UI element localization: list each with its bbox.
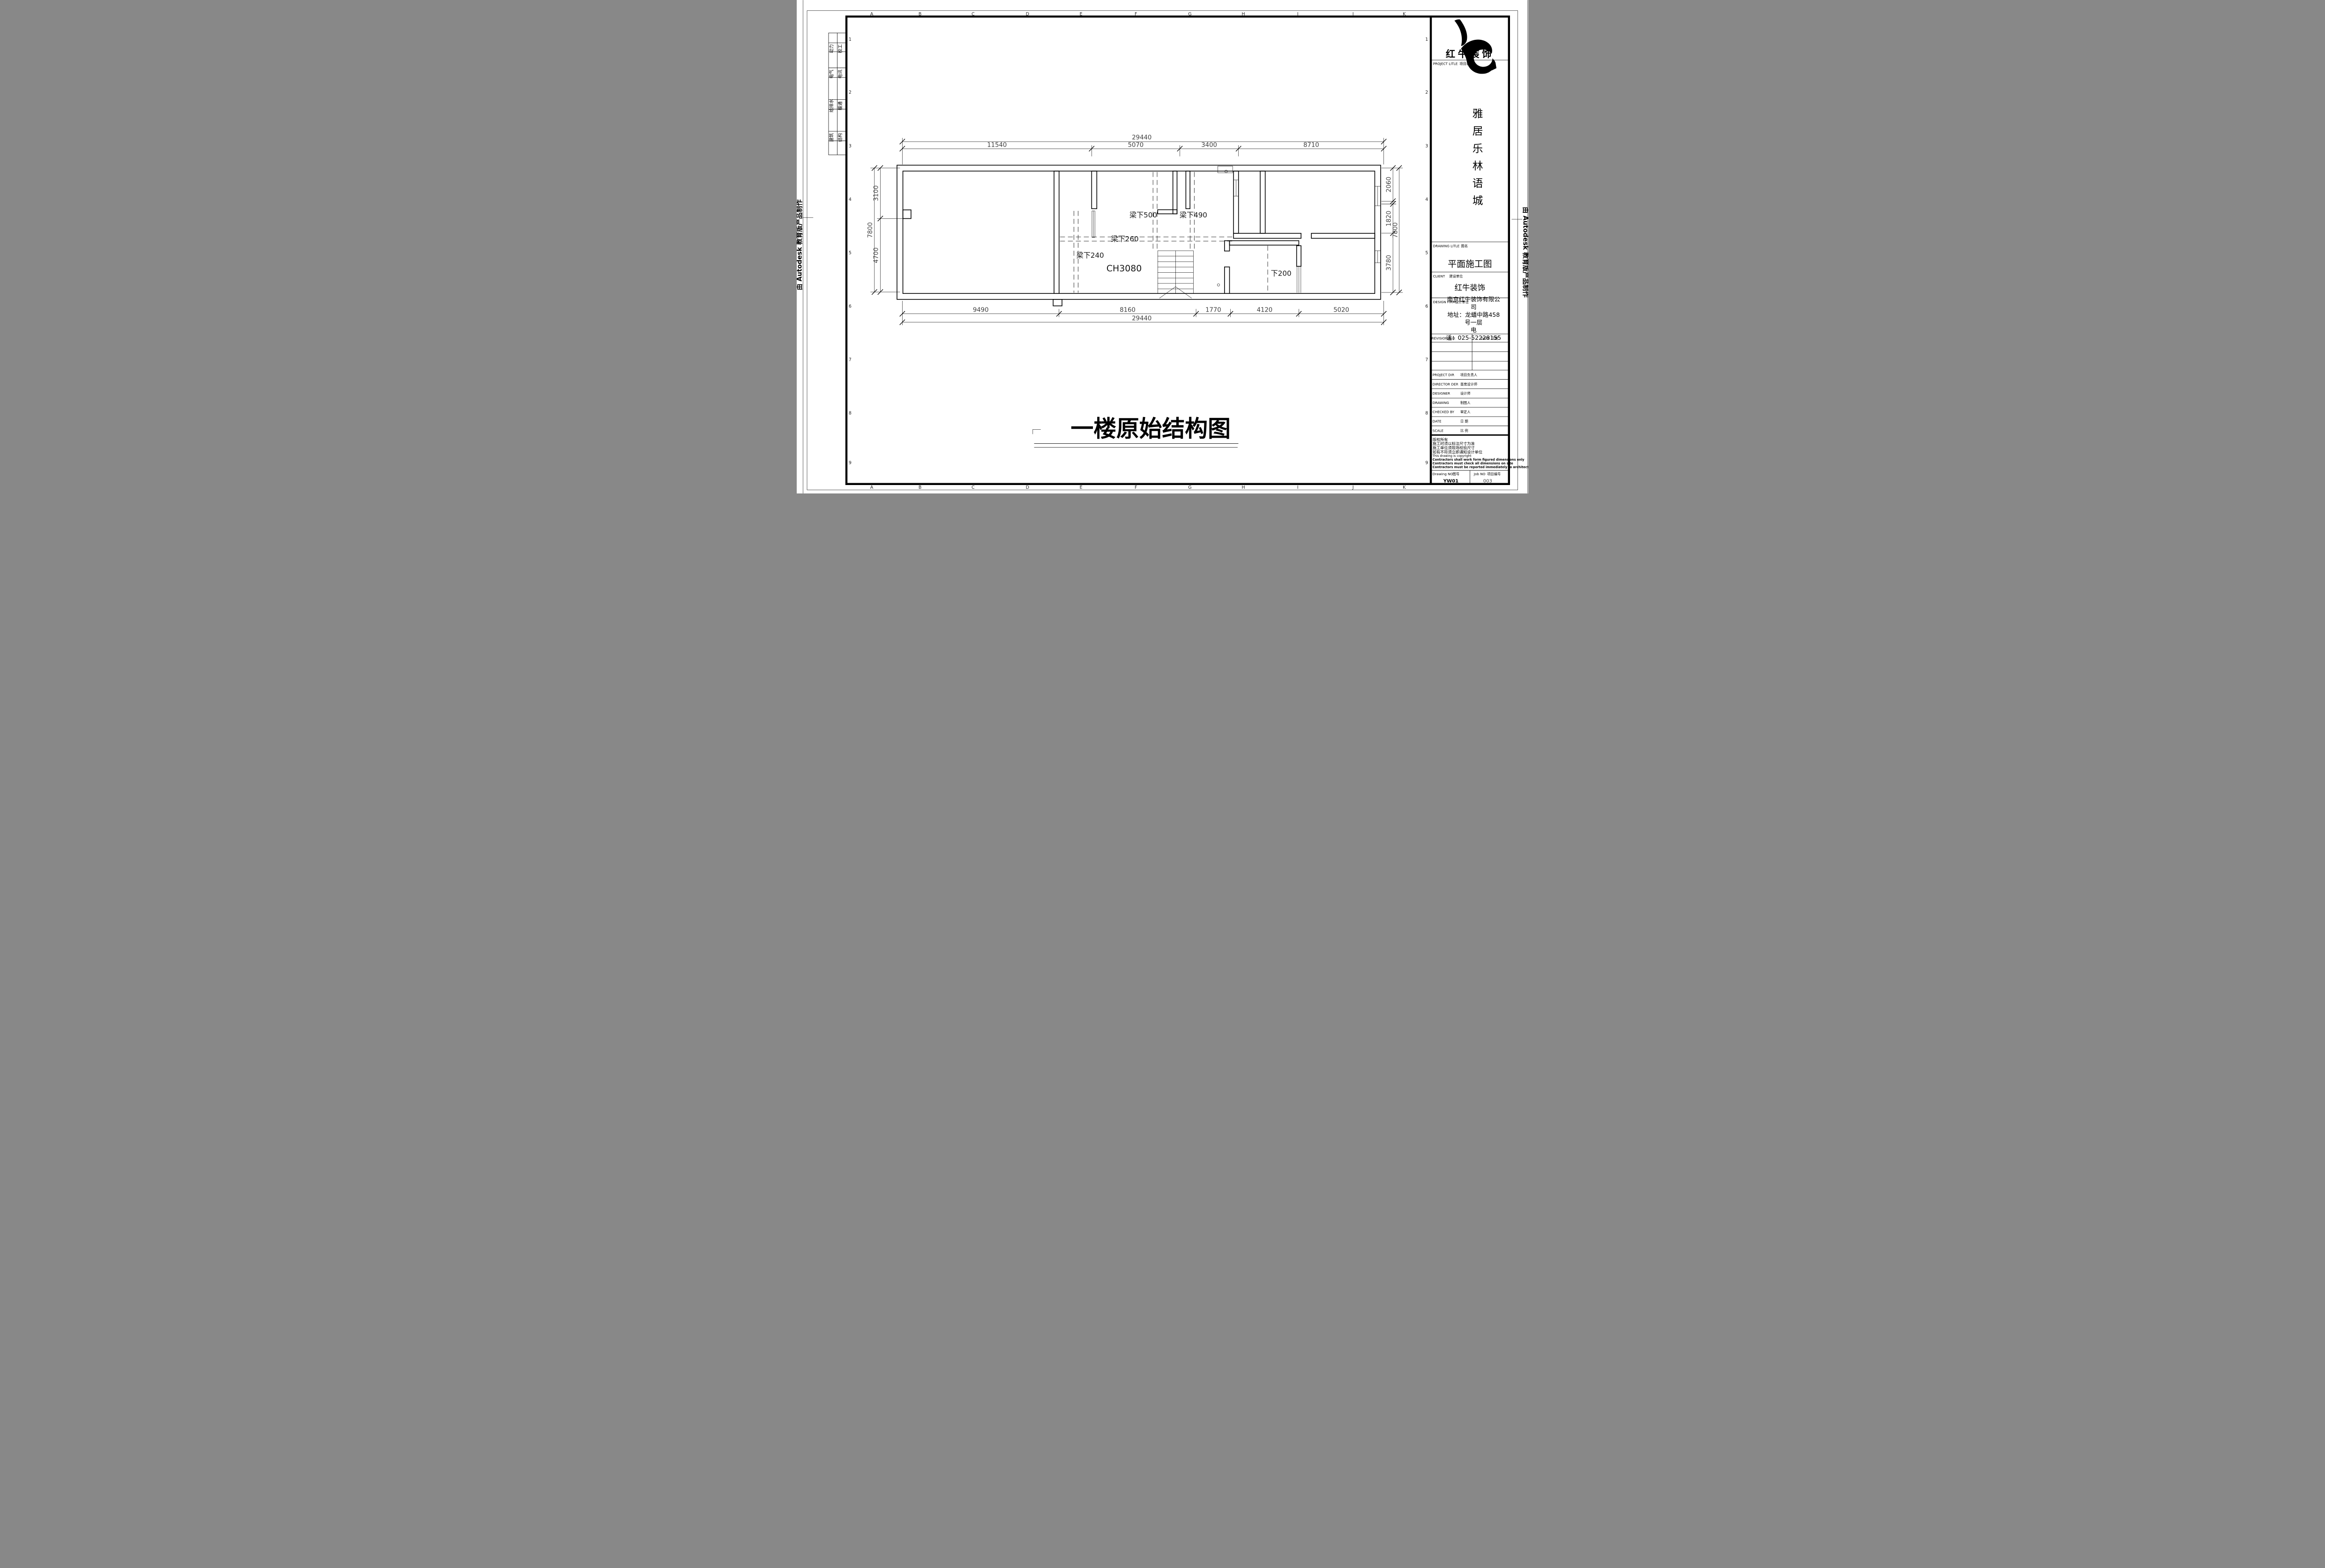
dim-bottom: 8160: [1120, 307, 1136, 314]
dim-left: 3100: [873, 185, 880, 201]
grid-letter: G: [1188, 12, 1191, 17]
revisions-date-en: DATE: [1481, 336, 1490, 340]
title-bracket: [1033, 429, 1041, 434]
project-label-cn: 项目名称: [1459, 62, 1473, 66]
wall-notch: [1053, 299, 1062, 306]
drawing-title: 平面施工图: [1448, 259, 1492, 269]
grid-number: 3: [849, 143, 852, 149]
project-name-char: 乐: [1473, 143, 1483, 155]
window-symbol: [1234, 180, 1239, 196]
grid-number: 5: [1425, 251, 1428, 256]
personnel-label-en: DIRECTOR DER: [1433, 382, 1458, 386]
personnel-label-en: DATE: [1433, 419, 1442, 424]
dim-bottom: 9490: [973, 307, 989, 314]
grid-letters-bottom: A B C D E F G H I J K: [870, 485, 1406, 490]
grid-letter: C: [972, 485, 975, 490]
logo-text: 红牛装饰: [1446, 48, 1494, 60]
discipline-label: 给排水: [829, 99, 834, 112]
window-symbol: [1375, 251, 1380, 263]
grid-letter: A: [870, 12, 874, 17]
beam-label-240: 梁下240: [1077, 251, 1104, 260]
personnel-rows: PROJECT DIR 项目负责人 DIRECTOR DER 首席设计师 DES…: [1431, 370, 1509, 433]
dim-left-overall: 7800: [867, 222, 874, 238]
discipline-label: 电讯: [837, 69, 843, 78]
discipline-label: 校工: [837, 44, 843, 53]
grid-numbers-right: 1 2 3 4 5 6 7 8 9: [1425, 37, 1428, 465]
dimension-right: 2060 1820 3780 7800: [1382, 165, 1403, 295]
dimension-left: 3100 4700 7800: [867, 165, 903, 295]
beam-label-260: 梁下260: [1111, 235, 1139, 243]
beam-label-490: 梁下490: [1180, 211, 1207, 219]
grid-letter: B: [919, 485, 921, 490]
beam-label-500: 梁下500: [1129, 211, 1157, 219]
title-block: 红牛装饰 PROJECT LITLE 项目名称 雅 居 乐 林 语 城 DRAW…: [1431, 19, 1528, 484]
dim-right-overall: 7800: [1392, 222, 1399, 238]
grid-number: 1: [1425, 37, 1428, 42]
personnel-label-cn: 比 例: [1460, 428, 1468, 433]
dim-left: 4700: [873, 247, 880, 263]
grid-number: 2: [849, 90, 852, 95]
grid-number: 8: [849, 411, 852, 416]
grid-number: 4: [849, 197, 852, 202]
grid-numbers-left: 1 2 3 4 5 6 7 8 9: [849, 37, 852, 465]
dimension-top: 29440 11540 5070 3400 8710: [900, 134, 1387, 164]
grid-letter: F: [1135, 12, 1137, 17]
personnel-label-cn: 设计师: [1460, 391, 1471, 396]
grid-letter: D: [1026, 485, 1029, 490]
grid-number: 9: [849, 460, 852, 465]
dim-top: 11540: [987, 142, 1007, 149]
personnel-label-en: CHECKED BY: [1433, 410, 1455, 414]
firm-info-line: 电: [1471, 327, 1477, 334]
dimension-bottom: 9490 8160 1770 4120 5020 29440: [900, 301, 1387, 325]
copyright-line: Contractors shall work form figured dime…: [1433, 458, 1525, 462]
window-symbol: [1092, 211, 1095, 238]
grid-number: 5: [849, 251, 852, 256]
firm-info-line: 地址：龙蟠中路458: [1447, 311, 1500, 318]
grid-letter: J: [1352, 485, 1354, 490]
copyright-line: Contractors must check all dimensions on…: [1433, 462, 1513, 465]
project-name: 雅 居 乐 林 语 城: [1473, 108, 1483, 208]
personnel-label-cn: 日 期: [1460, 419, 1468, 424]
job-no-label-en: Job NO: [1473, 472, 1486, 476]
beam-lines: [1060, 172, 1268, 293]
grid-letter: E: [1080, 485, 1083, 490]
project-name-char: 居: [1473, 126, 1483, 138]
grid-letter: I: [1297, 485, 1299, 490]
grid-letter: I: [1297, 12, 1299, 17]
discipline-label: 结构: [837, 133, 843, 142]
grid-number: 7: [1425, 358, 1428, 363]
project-name-char: 语: [1473, 178, 1483, 190]
cad-sheet: 由 Autodesk 教育版产品制作 由 Autodesk 教育版产品制作 A …: [797, 0, 1528, 493]
drawing-title-label-en: DRAWING LITLE: [1433, 244, 1460, 248]
personnel-label-cn: 首席设计师: [1460, 382, 1477, 386]
firm-info-line: 号一层: [1465, 319, 1482, 326]
dim-right: 3780: [1385, 255, 1392, 271]
dim-top-overall: 29440: [1132, 134, 1151, 142]
grid-letter: G: [1188, 485, 1191, 490]
grid-number: 1: [849, 37, 852, 42]
client-label-en: CLIENT: [1433, 274, 1445, 278]
dim-top: 3400: [1201, 142, 1217, 149]
window-symbol: [1297, 266, 1301, 292]
dim-right: 2060: [1385, 177, 1392, 193]
drawing-no-label-en: Drawing NO: [1433, 472, 1453, 476]
personnel-label-en: SCALE: [1433, 428, 1444, 433]
wall-jog: [903, 210, 911, 219]
firm-info-line: 司: [1471, 304, 1477, 311]
project-name-char: 雅: [1473, 108, 1483, 120]
grid-letter: K: [1403, 485, 1406, 490]
floor-plan-walls: [897, 165, 1381, 306]
dim-bottom: 1770: [1205, 307, 1221, 314]
down-200-label: 下200: [1271, 269, 1292, 277]
drawing-canvas: 由 Autodesk 教育版产品制作 由 Autodesk 教育版产品制作 A …: [797, 0, 1528, 493]
personnel-label-en: DESIGNER: [1433, 391, 1450, 396]
grid-letter: C: [972, 12, 975, 17]
window-symbol: [1375, 186, 1380, 206]
grid-letter: K: [1403, 12, 1406, 17]
grid-number: 9: [1425, 460, 1428, 465]
grid-number: 6: [1425, 304, 1428, 309]
copyright-notes: 版权所有 施工时须以标注尺寸为准 施工单位须现场校验尺寸 如有不符须立即通知设计…: [1432, 437, 1528, 469]
drawing-no-value: YW01: [1443, 479, 1458, 484]
grid-letter: D: [1026, 12, 1029, 17]
revisions-label-en: REVISIONS: [1432, 336, 1450, 340]
job-no-value: 003: [1483, 479, 1492, 484]
personnel-label-en: DRAWING: [1433, 401, 1449, 405]
grid-letter: E: [1080, 12, 1083, 17]
door-frame: [1218, 166, 1233, 172]
dim-bottom: 5020: [1333, 307, 1349, 314]
personnel-label-cn: 制图人: [1460, 401, 1471, 405]
personnel-label-cn: 审定人: [1460, 410, 1471, 414]
firm-info-line: 南京红牛装饰有限公: [1447, 296, 1501, 303]
dim-top: 8710: [1303, 142, 1319, 149]
client-label-cn: 建设单位: [1449, 274, 1463, 278]
grid-letter: H: [1242, 12, 1245, 17]
door-knob: [1217, 284, 1219, 286]
revisions-label-cn: 版本: [1449, 336, 1455, 340]
grid-letter: B: [919, 12, 921, 17]
page-title: 一楼原始结构图: [1070, 415, 1230, 442]
grid-number: 4: [1425, 197, 1428, 202]
personnel-label-cn: 项目负责人: [1460, 373, 1477, 377]
project-name-char: 林: [1473, 160, 1483, 172]
grid-number: 7: [849, 358, 852, 363]
copyright-line: 如有不符须立即通知设计单位: [1433, 449, 1482, 454]
grid-letter: A: [870, 485, 874, 490]
project-name-char: 城: [1473, 195, 1483, 207]
ceiling-height-label: CH3080: [1106, 263, 1142, 274]
discipline-label: 电气: [829, 69, 834, 78]
drawing-no-label-cn: 图号: [1453, 472, 1459, 476]
drawing-title-label-cn: 图名: [1461, 244, 1468, 248]
copyright-line: Contractors must be reported immediately…: [1433, 465, 1528, 469]
staircase: [1158, 251, 1193, 298]
discipline-label: 建筑: [829, 133, 834, 142]
copyright-line: This drawing is copyright: [1432, 454, 1472, 458]
discipline-strip: 动力 校工 电气 电讯 给排水 暖通 建筑 结构: [829, 33, 846, 155]
grid-letter: F: [1135, 485, 1137, 490]
personnel-label-en: PROJECT DIR: [1433, 373, 1454, 377]
client-name: 红牛装饰: [1455, 283, 1485, 292]
grid-number: 3: [1425, 143, 1428, 149]
dim-bottom: 4120: [1257, 307, 1273, 314]
discipline-label: 暖通: [837, 101, 843, 110]
dim-top: 5070: [1128, 142, 1144, 149]
dim-bottom-overall: 29440: [1132, 315, 1151, 322]
revisions-date-cn: 日期: [1491, 336, 1498, 340]
main-title-group: 一楼原始结构图: [1033, 415, 1239, 447]
discipline-label: 动力: [829, 44, 834, 53]
grid-letter: H: [1242, 485, 1245, 490]
autodesk-credit-left: 由 Autodesk 教育版产品制作: [797, 199, 804, 290]
job-no-label-cn: 项目编号: [1487, 472, 1501, 476]
grid-number: 2: [1425, 90, 1428, 95]
dim-right: 1820: [1385, 211, 1392, 227]
grid-number: 6: [849, 304, 852, 309]
grid-number: 8: [1425, 411, 1428, 416]
plan-labels: 梁下500 梁下490 梁下260 梁下240 CH3080 下200: [1077, 211, 1292, 277]
project-label-en: PROJECT LITLE: [1433, 62, 1458, 66]
autodesk-credit-right: 由 Autodesk 教育版产品制作: [1522, 207, 1528, 298]
firm-info: 南京红牛装饰有限公 司 地址：龙蟠中路458 号一层 电 话：025-52228…: [1446, 296, 1501, 341]
